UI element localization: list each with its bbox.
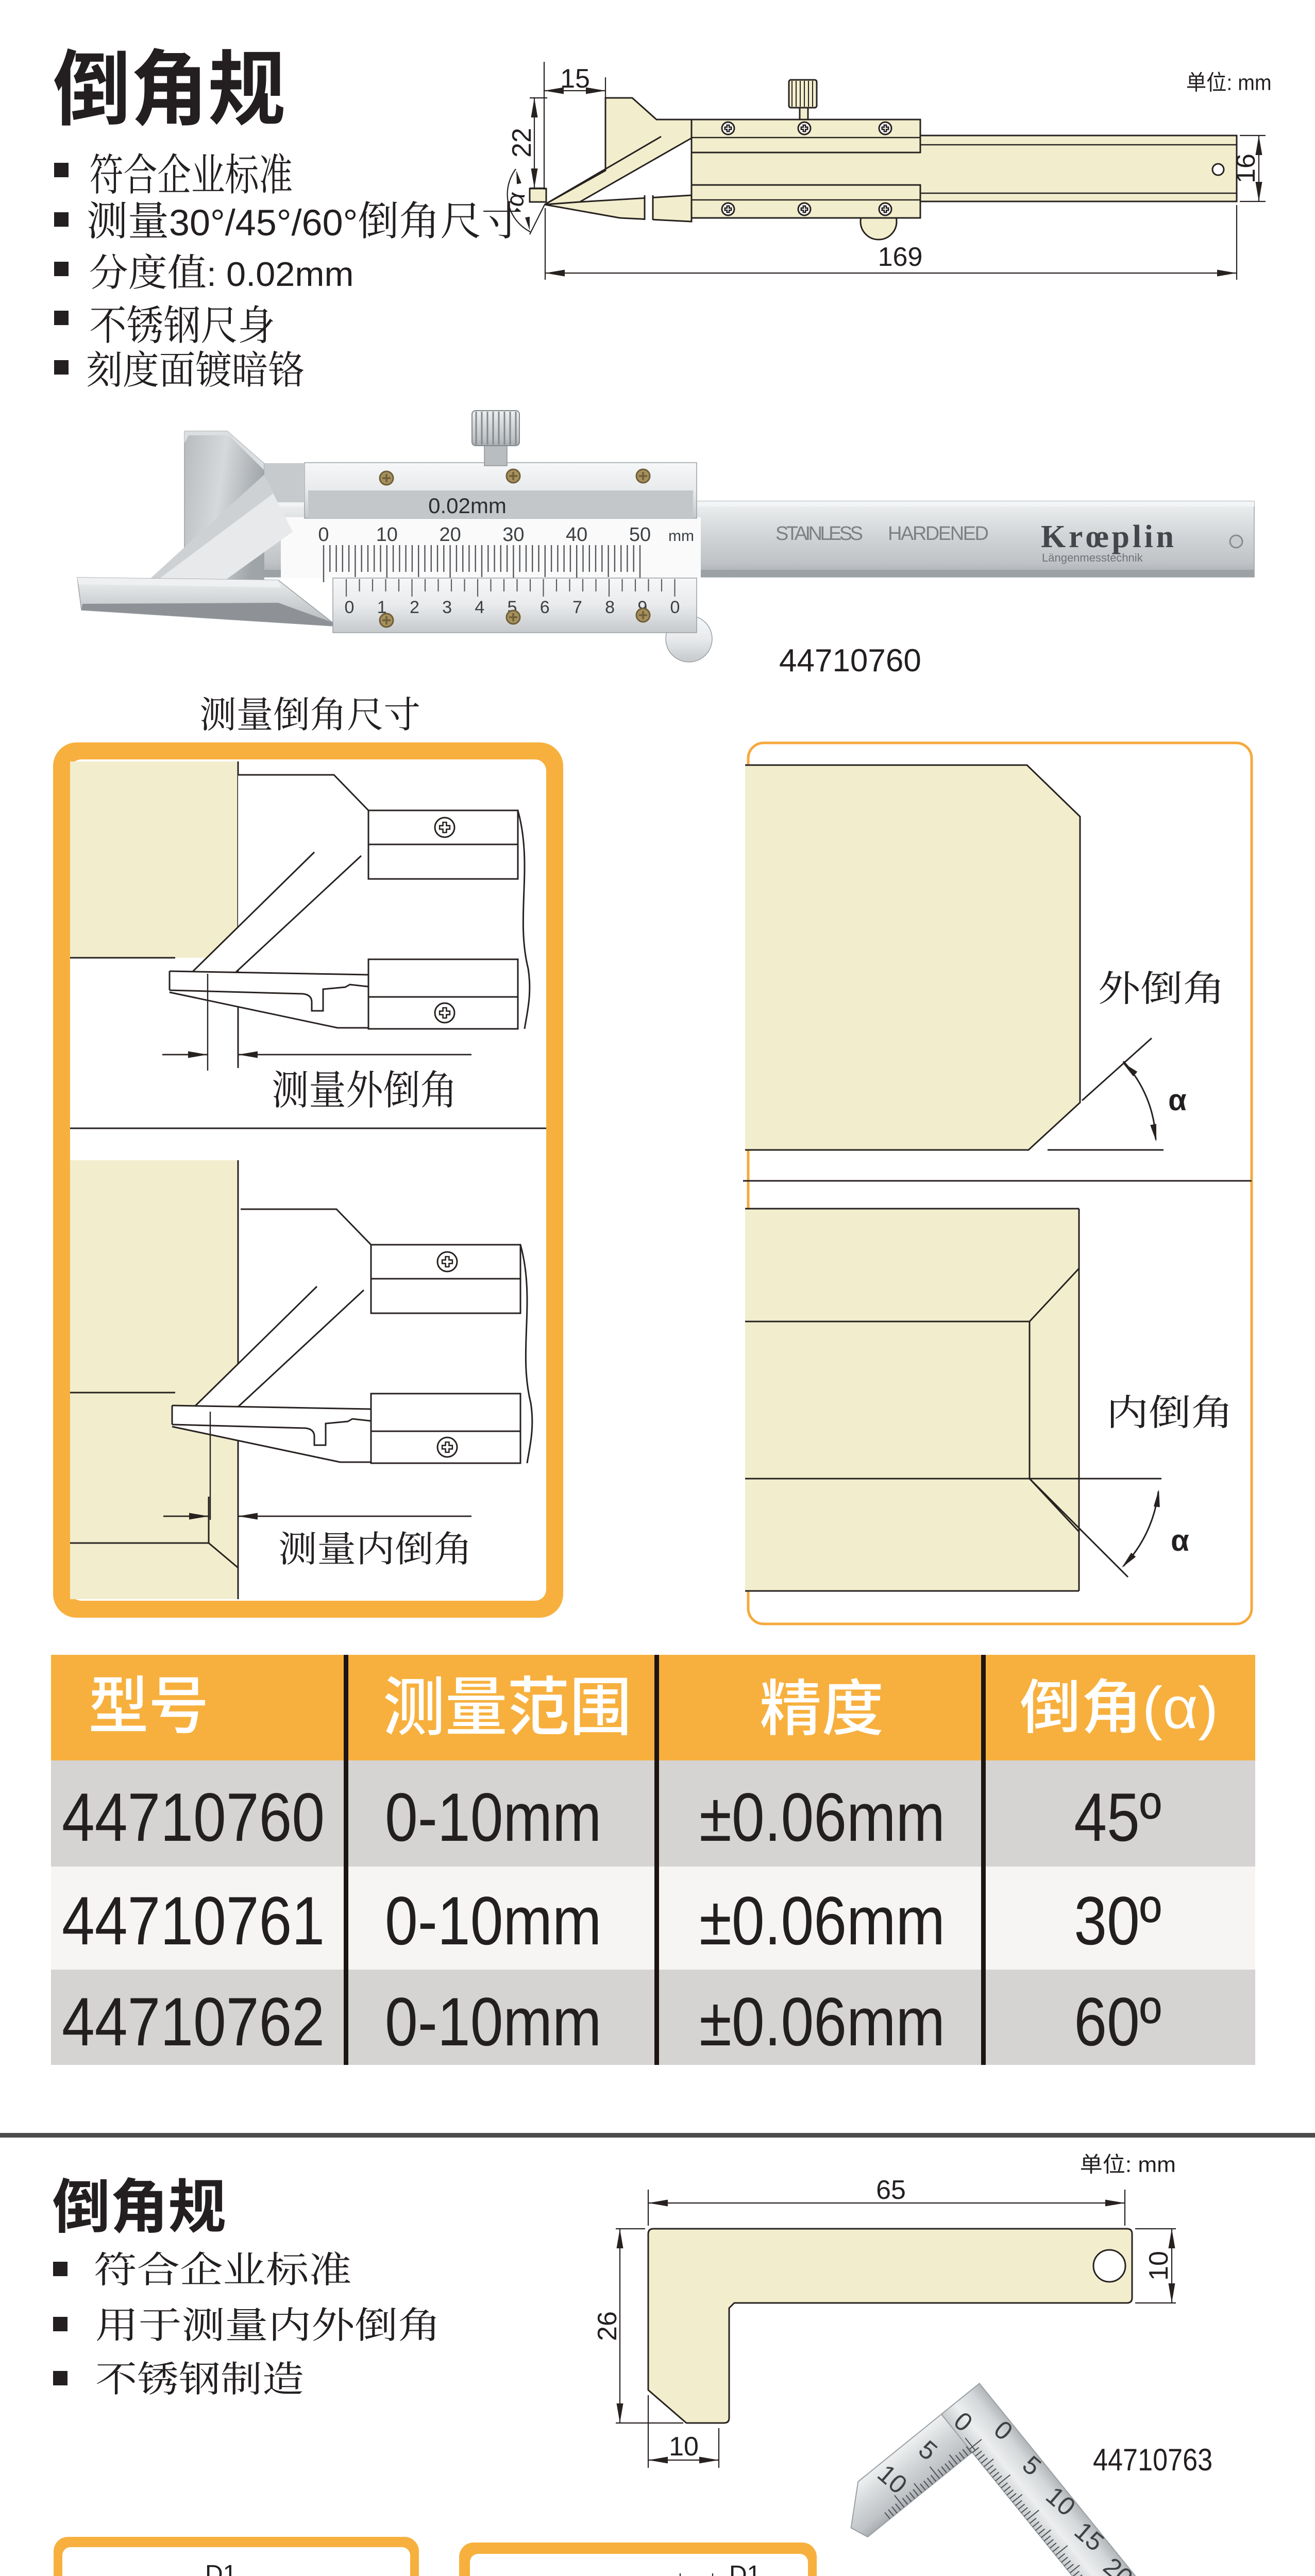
svg-text:2: 2 xyxy=(410,598,419,617)
svg-text:mm: mm xyxy=(668,528,694,545)
svg-text:44710761: 44710761 xyxy=(62,1883,325,1959)
svg-text:6: 6 xyxy=(540,598,550,617)
svg-text:7: 7 xyxy=(572,598,582,617)
svg-text:0-10mm: 0-10mm xyxy=(385,1883,601,1959)
svg-text:α: α xyxy=(1171,1524,1189,1557)
svg-text:44710760: 44710760 xyxy=(62,1780,325,1856)
svg-text:65: 65 xyxy=(876,2175,906,2205)
svg-text:0-10mm: 0-10mm xyxy=(385,1984,601,2060)
svg-text:D1: D1 xyxy=(729,2561,761,2576)
svg-text:10: 10 xyxy=(669,2432,699,2462)
svg-text:10: 10 xyxy=(1144,2251,1174,2281)
svg-text:10: 10 xyxy=(376,524,398,546)
svg-text:44710763: 44710763 xyxy=(1093,2443,1212,2477)
svg-text:45º: 45º xyxy=(1074,1780,1161,1856)
svg-text:16: 16 xyxy=(1231,154,1261,183)
svg-text:44710762: 44710762 xyxy=(62,1984,325,2060)
svg-text:0: 0 xyxy=(670,598,680,617)
svg-text:4: 4 xyxy=(475,598,484,617)
svg-text:±0.06mm: ±0.06mm xyxy=(699,1780,945,1856)
svg-text:±0.06mm: ±0.06mm xyxy=(699,1984,945,2060)
svg-text:D1: D1 xyxy=(205,2561,237,2576)
svg-text:α: α xyxy=(501,190,531,209)
svg-text:α: α xyxy=(1168,1083,1187,1117)
svg-text:169: 169 xyxy=(878,242,923,272)
svg-text:HARDENED: HARDENED xyxy=(888,523,989,545)
svg-text:44710760: 44710760 xyxy=(779,643,921,679)
svg-text:20: 20 xyxy=(439,524,461,546)
svg-text:40: 40 xyxy=(566,524,587,546)
svg-text:15: 15 xyxy=(560,64,590,94)
svg-text:±0.06mm: ±0.06mm xyxy=(699,1883,945,1959)
svg-text:30º: 30º xyxy=(1074,1883,1161,1959)
svg-text:3: 3 xyxy=(442,598,452,617)
svg-text:0.02mm: 0.02mm xyxy=(428,494,507,518)
svg-text:8: 8 xyxy=(605,598,615,617)
svg-text:60º: 60º xyxy=(1074,1984,1161,2060)
svg-text:0: 0 xyxy=(345,598,355,617)
svg-text:0: 0 xyxy=(318,524,329,546)
svg-text:22: 22 xyxy=(507,128,537,158)
svg-text:STAINLESS: STAINLESS xyxy=(775,523,863,545)
svg-text:26: 26 xyxy=(593,2311,622,2341)
svg-text:Längenmesstechnik: Längenmesstechnik xyxy=(1042,551,1143,564)
svg-text:0-10mm: 0-10mm xyxy=(385,1780,601,1856)
svg-text:50: 50 xyxy=(629,524,651,546)
svg-text:30: 30 xyxy=(502,524,524,546)
